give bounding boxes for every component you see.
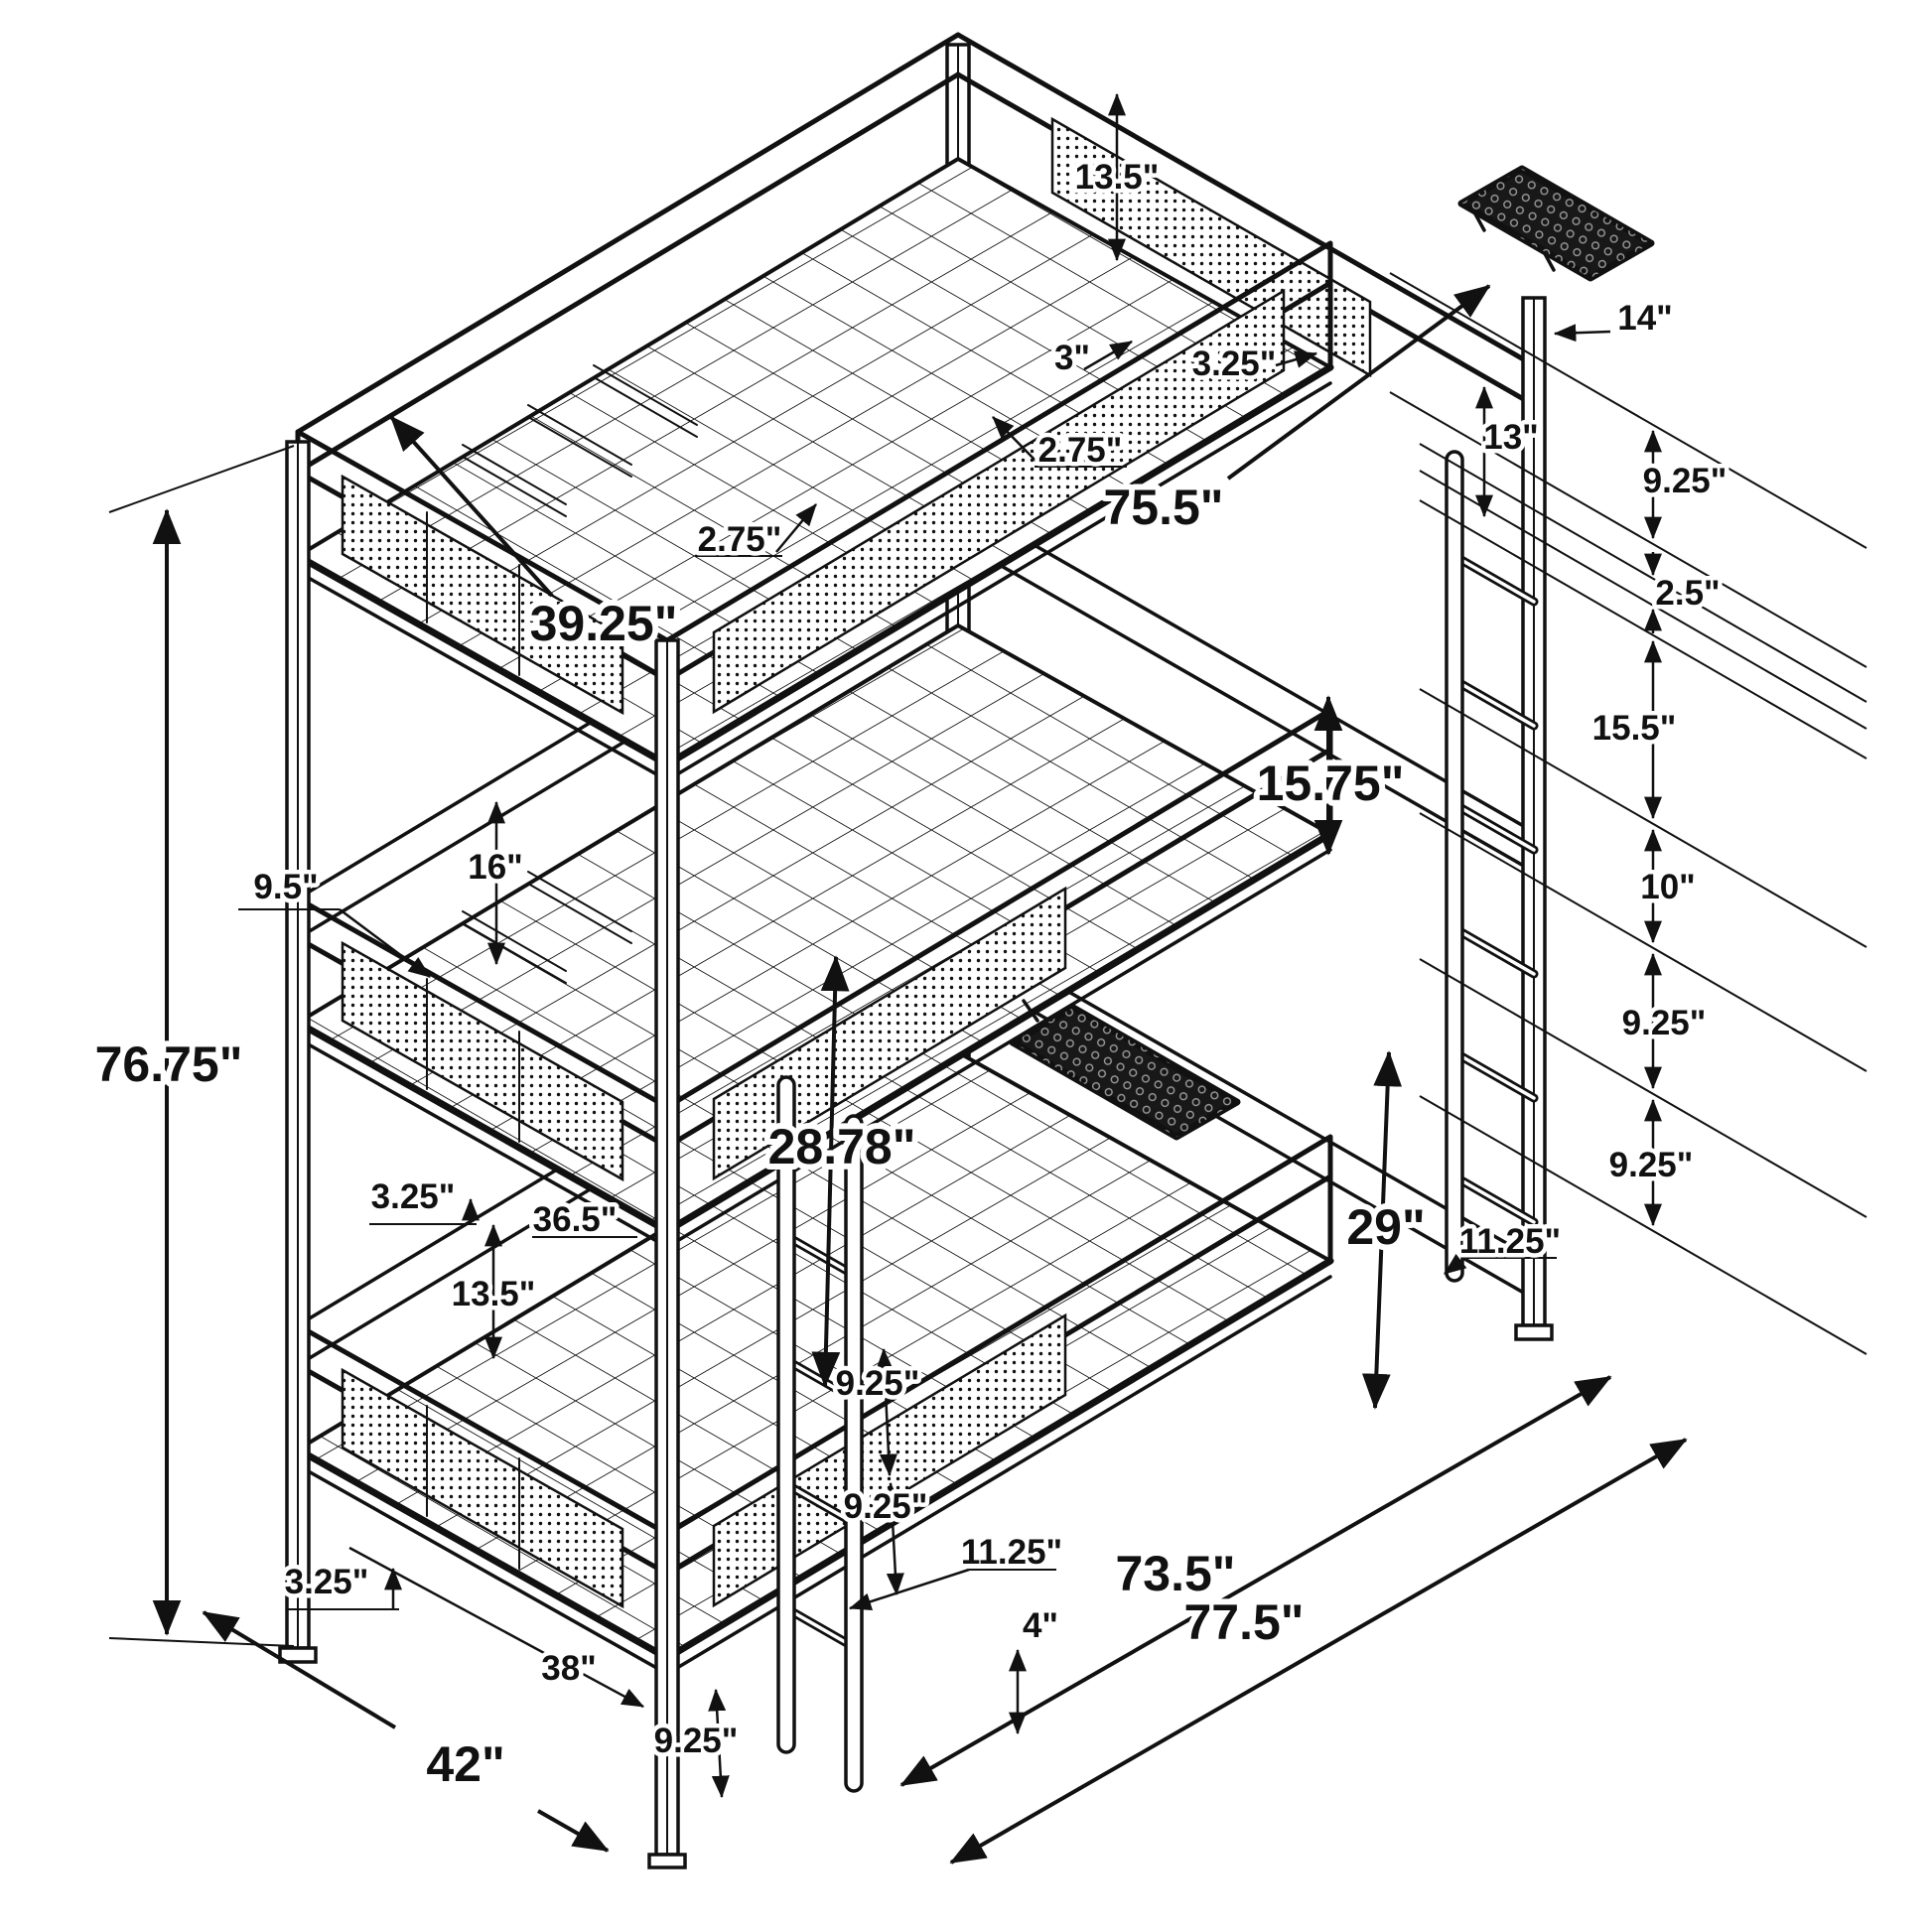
diagram-canvas: 13.5" 3" 3.25" 2.75" 2.75" 75.5" 39.25": [0, 0, 1932, 1932]
dim-label: 36.5": [533, 1200, 618, 1239]
dim-label: 3": [1054, 339, 1090, 377]
dim-label: 14": [1617, 299, 1673, 338]
dim-label: 28.78": [768, 1119, 916, 1174]
dim-label: 75.5": [1103, 480, 1223, 535]
dim-right-gap-15-5: 15.5": [1592, 641, 1677, 818]
left-post: [280, 442, 316, 1662]
dim-label: 2.75": [698, 520, 782, 559]
dim-label: 4": [1023, 1606, 1058, 1645]
dim-label: 9.25": [1622, 1004, 1707, 1042]
end-ladder: [1447, 452, 1534, 1281]
dim-label: 76.75": [95, 1036, 243, 1092]
dim-label: 13": [1483, 418, 1539, 457]
dim-label: 15.5": [1592, 709, 1677, 748]
front-post: [649, 640, 685, 1867]
dim-overall-width-42: 42": [204, 1612, 608, 1851]
dim-label: 9.25": [654, 1722, 739, 1760]
dim-label: 29": [1346, 1199, 1425, 1255]
dim-label: 2.75": [1038, 431, 1123, 470]
dim-overall-length-77-5: 77.5": [951, 1440, 1686, 1863]
dim-right-gap-10: 10": [1640, 830, 1696, 942]
dim-overall-height-76-75: 76.75": [95, 446, 294, 1646]
dim-left-offset-3-25: 3.25": [369, 1177, 477, 1224]
dim-right-gap-9-25-a: 9.25": [1643, 431, 1727, 538]
dim-label: 39.25": [530, 596, 678, 651]
dim-label: 3.25": [285, 1563, 369, 1601]
dim-label: 42": [426, 1736, 504, 1792]
dim-label: 13.5": [452, 1275, 536, 1313]
dim-label: 15.75": [1257, 756, 1405, 811]
dim-label: 73.5": [1115, 1546, 1235, 1601]
dim-label: 9.25": [844, 1487, 928, 1526]
bunk-bed-dimension-diagram: 13.5" 3" 3.25" 2.75" 2.75" 75.5" 39.25": [0, 0, 1932, 1932]
dim-label: 38": [541, 1649, 597, 1688]
dim-label: 13.5": [1075, 158, 1160, 197]
dim-label: 10": [1640, 868, 1696, 906]
dim-label: 2.5": [1655, 574, 1720, 613]
dim-label: 11.25": [1459, 1222, 1561, 1261]
dim-label: 16": [468, 848, 523, 887]
dim-label: 9.25": [1643, 462, 1727, 500]
dim-label: 9.25": [836, 1364, 920, 1403]
dim-label: 9.5": [253, 868, 318, 906]
bed-frame: [280, 35, 1651, 1867]
dim-bottom-clearance-29: 29": [1346, 1052, 1425, 1408]
dim-label: 3.25": [1192, 345, 1277, 383]
dim-right-gap-9-25-b: 9.25": [1622, 954, 1707, 1088]
top-tray: [1461, 169, 1651, 278]
dim-label: 77.5": [1183, 1594, 1304, 1650]
dim-end-post-offset-14: 14": [1555, 299, 1673, 338]
dim-label: 3.25": [371, 1177, 456, 1216]
dim-label: 11.25": [961, 1533, 1062, 1572]
dim-label: 9.25": [1609, 1146, 1694, 1184]
dim-right-gap-9-25-c: 9.25": [1609, 1100, 1694, 1225]
